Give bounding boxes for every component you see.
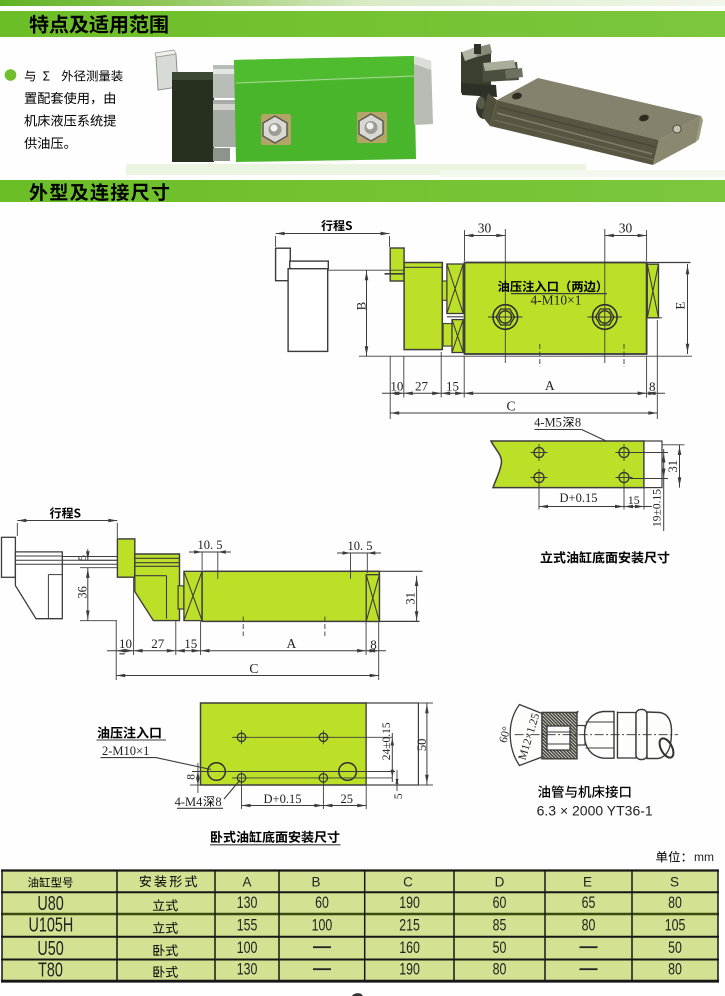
svg-text:15: 15 (628, 493, 640, 507)
svg-text:S: S (670, 874, 679, 889)
svg-text:65: 65 (582, 894, 596, 912)
svg-text:A: A (242, 874, 251, 889)
svg-text:10. 5: 10. 5 (198, 538, 223, 552)
svg-text:130: 130 (237, 961, 258, 979)
svg-text:190: 190 (399, 961, 420, 979)
svg-text:U105H: U105H (29, 913, 74, 936)
svg-text:8: 8 (575, 416, 581, 430)
svg-text:10: 10 (119, 636, 132, 651)
svg-text:B: B (311, 874, 320, 889)
svg-text:50: 50 (415, 739, 429, 752)
svg-text:27: 27 (151, 636, 165, 651)
svg-text:30: 30 (619, 220, 633, 235)
svg-text:E: E (673, 302, 688, 310)
svg-text:U80: U80 (37, 891, 63, 914)
svg-text:160: 160 (399, 939, 420, 957)
svg-text:8: 8 (186, 774, 198, 780)
svg-text:2-M10×1: 2-M10×1 (102, 744, 149, 758)
svg-text:80: 80 (493, 961, 507, 979)
svg-text:6.3 × 2000 YT36-1: 6.3 × 2000 YT36-1 (537, 803, 653, 819)
svg-text:85: 85 (493, 917, 507, 935)
svg-text:C: C (249, 661, 258, 676)
svg-text:31: 31 (404, 592, 418, 605)
svg-text:8: 8 (215, 795, 221, 809)
svg-text:24±0.15: 24±0.15 (381, 722, 393, 760)
svg-text:A: A (545, 378, 555, 393)
svg-text:19±0.15: 19±0.15 (651, 489, 663, 527)
svg-text:5: 5 (393, 793, 405, 799)
svg-text:U50: U50 (37, 936, 63, 959)
svg-text:D+0.15: D+0.15 (264, 792, 302, 806)
svg-text:190: 190 (399, 894, 420, 912)
svg-text:D+0.15: D+0.15 (560, 491, 598, 505)
svg-text:100: 100 (312, 917, 333, 935)
svg-text:60: 60 (493, 894, 507, 912)
svg-text:10. 5: 10. 5 (348, 539, 373, 553)
svg-text:E: E (583, 874, 592, 889)
svg-text:31: 31 (666, 460, 680, 473)
svg-text:80: 80 (582, 917, 596, 935)
svg-text:27: 27 (415, 378, 429, 393)
svg-text:4-M10×1: 4-M10×1 (530, 293, 581, 308)
svg-text:T80: T80 (38, 958, 63, 981)
svg-text:mm: mm (694, 850, 714, 864)
svg-text:80: 80 (668, 894, 682, 912)
svg-text:8: 8 (649, 379, 656, 394)
svg-text:4-M5: 4-M5 (534, 416, 562, 430)
svg-text:25: 25 (340, 792, 353, 806)
svg-text:60: 60 (315, 894, 329, 912)
svg-text:50: 50 (668, 939, 682, 957)
svg-text:100: 100 (237, 939, 258, 957)
svg-text:4-M4: 4-M4 (175, 795, 204, 809)
svg-text:D: D (495, 874, 505, 889)
svg-text:10: 10 (390, 378, 403, 393)
svg-text:C: C (506, 399, 515, 414)
svg-text:C: C (403, 874, 413, 889)
svg-text:215: 215 (399, 917, 420, 935)
svg-text:105: 105 (665, 917, 686, 935)
svg-text:15: 15 (446, 378, 459, 393)
svg-text:50: 50 (493, 939, 507, 957)
svg-text:155: 155 (237, 917, 258, 935)
svg-text:130: 130 (237, 894, 258, 912)
svg-text:A: A (287, 636, 297, 651)
svg-text:36: 36 (75, 586, 89, 599)
svg-text:80: 80 (668, 961, 682, 979)
svg-text:B: B (353, 301, 368, 310)
svg-text:30: 30 (478, 220, 492, 235)
svg-text:15: 15 (184, 636, 197, 651)
svg-text:8: 8 (370, 637, 377, 652)
